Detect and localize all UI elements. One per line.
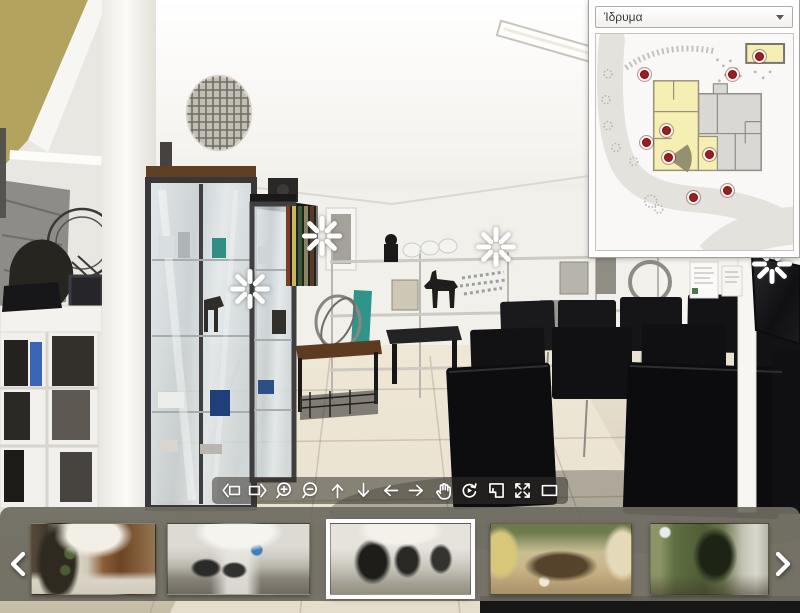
chevron-left-icon xyxy=(5,572,33,587)
floorplan-toggle-button[interactable] xyxy=(483,478,509,503)
floorplan-icon xyxy=(486,480,507,501)
grid-disc-sculpture xyxy=(187,76,251,152)
arrow-left-icon xyxy=(380,480,401,501)
chevron-down-icon xyxy=(776,15,784,20)
step-left-button[interactable] xyxy=(218,478,244,503)
wall-labels xyxy=(690,262,742,298)
zoom-in-button[interactable] xyxy=(271,478,297,503)
outbuilding xyxy=(746,44,784,63)
pan-up-button[interactable] xyxy=(324,478,350,503)
step-right-icon xyxy=(247,480,268,501)
step-left-icon xyxy=(221,480,242,501)
filmstrip-prev-button[interactable] xyxy=(5,544,33,584)
hand-icon xyxy=(433,480,454,501)
pan-left-button[interactable] xyxy=(377,478,403,503)
printer xyxy=(2,282,62,312)
scene-hotspot-sparkle[interactable] xyxy=(300,214,344,258)
bust-sculpture xyxy=(385,234,397,246)
thumbnail-courtyard-garden[interactable] xyxy=(490,523,632,595)
arrow-down-icon xyxy=(353,480,374,501)
map-location-marker[interactable] xyxy=(723,186,732,195)
drag-mode-button[interactable] xyxy=(430,478,456,503)
zoom-out-button[interactable] xyxy=(298,478,324,503)
windowed-view-button[interactable] xyxy=(536,478,562,503)
display-cabinet-left xyxy=(146,142,256,508)
pan-down-button[interactable] xyxy=(351,478,377,503)
floorplan-panel: Ίδρυμα xyxy=(588,0,800,258)
fullscreen-icon xyxy=(512,480,533,501)
zoom-in-icon xyxy=(274,480,295,501)
bookshelf xyxy=(0,332,98,508)
map-location-marker[interactable] xyxy=(705,150,714,159)
scene-hotspot-sparkle[interactable] xyxy=(228,267,272,311)
arrow-up-icon xyxy=(327,480,348,501)
map-location-marker[interactable] xyxy=(689,193,698,202)
map-location-marker[interactable] xyxy=(642,138,651,147)
map-location-marker[interactable] xyxy=(664,153,673,162)
area-select-dropdown[interactable]: Ίδρυμα xyxy=(595,6,793,28)
panorama-viewer[interactable]: Ίδρυμα xyxy=(0,0,800,613)
autorotate-icon xyxy=(459,480,480,501)
floorplan-map[interactable] xyxy=(595,33,794,251)
fullscreen-button[interactable] xyxy=(510,478,536,503)
map-location-marker[interactable] xyxy=(728,70,737,79)
thumbnail-garden-trees[interactable] xyxy=(650,523,769,595)
area-select-value: Ίδρυμα xyxy=(604,10,776,24)
blue-binder xyxy=(30,342,42,386)
thumbnail-gallery-exhibits[interactable] xyxy=(330,523,471,595)
thumbnail-office-room[interactable] xyxy=(167,523,310,595)
side-room xyxy=(0,0,116,512)
viewer-toolbar xyxy=(212,477,568,504)
autorotate-button[interactable] xyxy=(457,478,483,503)
map-location-marker[interactable] xyxy=(662,126,671,135)
zoom-out-icon xyxy=(300,480,321,501)
scene-hotspot-sparkle[interactable] xyxy=(474,225,518,269)
pan-right-button[interactable] xyxy=(404,478,430,503)
map-location-marker[interactable] xyxy=(640,70,649,79)
thumbnail-entrance-rock-wood[interactable] xyxy=(31,523,156,595)
arrow-right-icon xyxy=(406,480,427,501)
chevron-right-icon xyxy=(768,572,796,587)
floorplan-drawing xyxy=(596,34,794,251)
filmstrip-next-button[interactable] xyxy=(768,544,796,584)
thumbnail-filmstrip xyxy=(0,507,800,601)
map-location-marker[interactable] xyxy=(755,52,764,61)
step-right-button[interactable] xyxy=(245,478,271,503)
window-icon xyxy=(539,480,560,501)
